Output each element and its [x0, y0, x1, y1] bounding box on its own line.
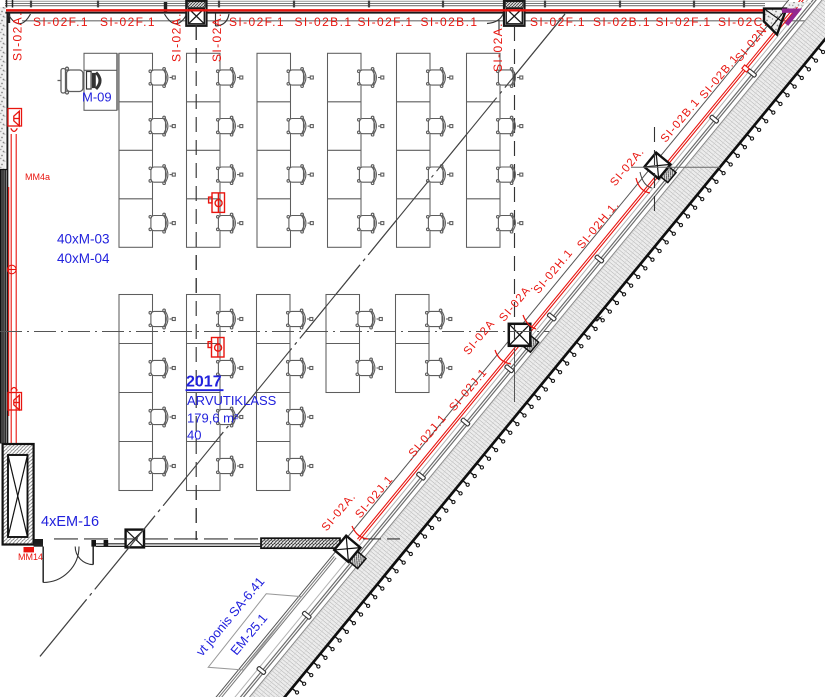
svg-text:SI-02A.: SI-02A.: [11, 11, 25, 61]
svg-text:SI-02B.1: SI-02B.1: [295, 15, 353, 29]
svg-text:SI-02A.: SI-02A.: [210, 12, 224, 62]
svg-text:SI-02A.: SI-02A.: [491, 22, 505, 72]
svg-text:4xEM-16: 4xEM-16: [41, 514, 99, 530]
svg-text:2017: 2017: [186, 374, 222, 391]
svg-text:40: 40: [187, 428, 201, 443]
svg-text:SI-02A.: SI-02A.: [170, 12, 184, 62]
svg-text:SI-02B.1: SI-02B.1: [593, 15, 651, 29]
svg-text:SI-02F.1: SI-02F.1: [358, 15, 414, 29]
svg-text:SI-02F.1: SI-02F.1: [229, 15, 285, 29]
svg-text:MM4a: MM4a: [25, 172, 50, 182]
svg-text:SI-02F.1: SI-02F.1: [33, 15, 89, 29]
svg-text:179,6 m²: 179,6 m²: [187, 411, 239, 426]
svg-text:SI-02F.1: SI-02F.1: [100, 15, 156, 29]
svg-text:M-09: M-09: [82, 90, 112, 105]
svg-text:40xM-03: 40xM-03: [57, 232, 110, 247]
svg-text:SI-02B.1: SI-02B.1: [421, 15, 479, 29]
svg-text:SI-02F.1: SI-02F.1: [530, 15, 586, 29]
svg-text:40xM-04: 40xM-04: [57, 251, 110, 266]
svg-text:ARVUTIKLASS: ARVUTIKLASS: [187, 393, 277, 408]
svg-text:MM14: MM14: [18, 552, 43, 562]
svg-text:SI-02F.1: SI-02F.1: [656, 15, 712, 29]
